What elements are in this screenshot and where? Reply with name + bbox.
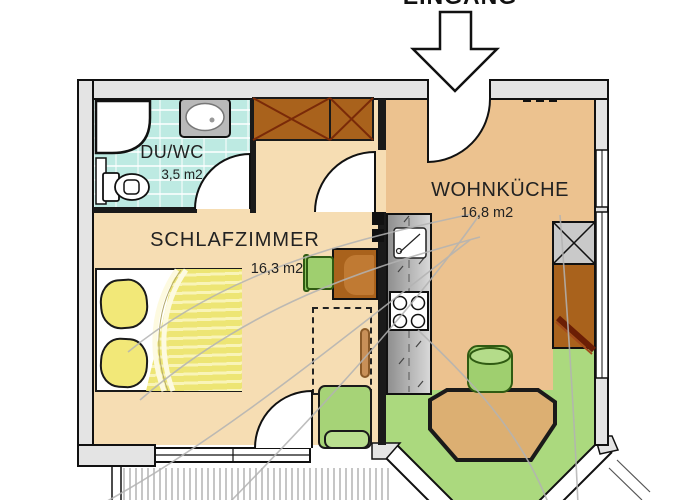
bay-window-left bbox=[383, 443, 460, 500]
bay-corner-right bbox=[595, 436, 618, 454]
wall-top-left bbox=[78, 80, 428, 99]
nightstand bbox=[98, 233, 131, 266]
folded-bed-strip bbox=[360, 328, 370, 378]
desk-top bbox=[344, 255, 374, 295]
room-label-bath: DU/WC bbox=[112, 142, 232, 163]
desk bbox=[332, 248, 378, 300]
wall-bottom-left bbox=[78, 445, 155, 466]
wall-right bbox=[595, 99, 608, 445]
room-area-bedroom: 16,3 m2 bbox=[222, 261, 332, 277]
entrance-arrow-icon bbox=[413, 12, 497, 91]
window-kitchen-east-upper bbox=[596, 150, 608, 207]
room-area-kitchen: 16,8 m2 bbox=[432, 205, 542, 221]
nightstand bbox=[96, 398, 132, 431]
floor-plan: EINGANG DU/WC 3,5 m2 SCHLAFZIMMER 16,3 m… bbox=[0, 0, 700, 500]
balcony-rail-right bbox=[609, 460, 650, 500]
room-label-bedroom: SCHLAFZIMMER bbox=[130, 229, 340, 252]
bay-corner-left bbox=[372, 443, 400, 459]
bay-window-right bbox=[535, 440, 612, 500]
room-label-kitchen: WOHNKÜCHE bbox=[418, 179, 582, 202]
entrance-label: EINGANG bbox=[400, 0, 520, 10]
bay-window-left-frame bbox=[383, 443, 460, 500]
sofa-bed bbox=[318, 385, 372, 449]
wall-top-right bbox=[490, 80, 608, 99]
room-area-bath: 3,5 m2 bbox=[122, 167, 242, 182]
balcony-rail-left bbox=[112, 466, 121, 500]
bay-window-right-frame bbox=[535, 440, 612, 500]
sofa-pillow bbox=[324, 430, 370, 449]
pillow bbox=[99, 337, 150, 389]
pillow bbox=[98, 277, 149, 330]
balcony-hatch bbox=[123, 468, 389, 500]
kitchen-counter bbox=[386, 213, 432, 395]
window-bedroom-south bbox=[155, 448, 310, 462]
wall-left bbox=[78, 80, 93, 466]
window-kitchen-east-lower bbox=[596, 212, 608, 378]
